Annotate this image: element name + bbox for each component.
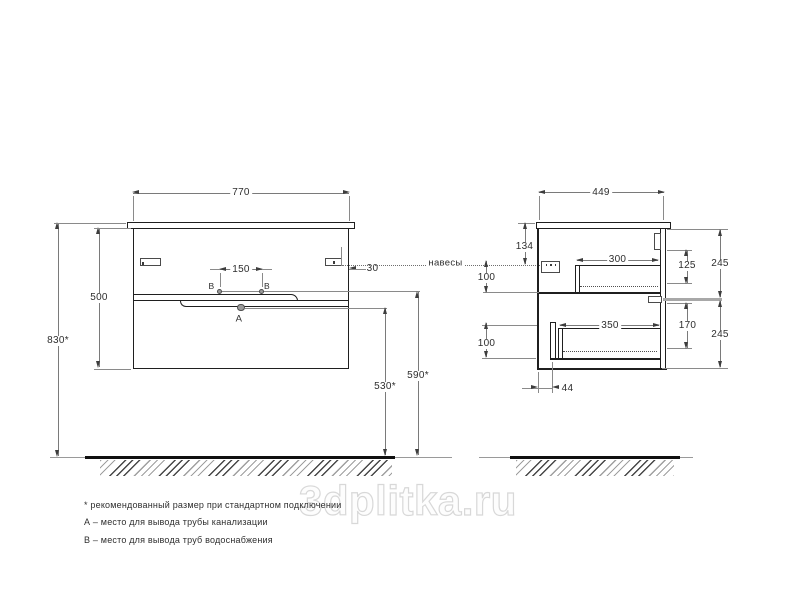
ext-line	[539, 196, 540, 220]
dim-front-width: 770	[230, 188, 252, 198]
floor-line-side	[510, 456, 680, 459]
vanity-technical-drawing: 3dplitka.ru В В А 150	[0, 0, 800, 600]
dim-supply-height: 590*	[405, 371, 431, 381]
ext-line	[662, 368, 728, 369]
side-front-edge	[537, 228, 539, 370]
front-drawer-groove-top	[133, 294, 290, 295]
label-b-right: В	[262, 282, 272, 291]
dim-upper-section: 245	[709, 259, 731, 269]
dim-hanger-gap: 100	[476, 273, 498, 283]
side-upper-mount-rail	[654, 233, 661, 250]
dim-hanger-offset: 30	[365, 264, 381, 274]
ext-line	[482, 325, 537, 326]
dim-upper-inner-height: 125	[676, 261, 698, 271]
hanger-pin	[546, 264, 548, 266]
drain-level-line	[245, 308, 387, 309]
dim-tail	[210, 269, 220, 270]
ext-line	[341, 247, 342, 267]
dim-drain-height: 530*	[372, 382, 398, 392]
side-bottom-edge	[537, 368, 667, 370]
upper-drawer-front	[575, 265, 576, 293]
front-cabinet-body	[133, 228, 349, 369]
upper-drawer-bottom	[539, 292, 661, 293]
ext-line	[483, 292, 539, 293]
dim-lower-drawer-depth: 350	[599, 321, 621, 331]
dim-total-height: 830*	[45, 336, 71, 346]
front-left-hanger-pin	[142, 262, 145, 265]
dim-line-hanger-offset	[349, 269, 366, 270]
front-drawer-gap-line	[133, 300, 349, 302]
lower-drawer-bottom	[550, 358, 661, 359]
floor-hatch-front	[100, 460, 392, 476]
floor-hatch-side	[516, 460, 674, 476]
dim-body-height: 500	[88, 293, 110, 303]
dim-lower-inner-height: 170	[677, 321, 699, 331]
supply-level-line	[221, 291, 420, 292]
lower-drawer-front-wall-inner	[562, 328, 563, 359]
upper-drawer-front-inner	[579, 265, 580, 293]
drain-point	[237, 304, 244, 311]
dim-tail	[262, 269, 272, 270]
hanger-pin	[555, 264, 557, 266]
side-divider-line	[663, 298, 722, 301]
lower-drawer-dotted	[563, 351, 657, 352]
dim-depth: 449	[590, 188, 612, 198]
lower-drawer-front-wall	[558, 328, 559, 359]
dim-front-clearance: 44	[560, 384, 576, 394]
ext-line	[94, 228, 131, 229]
side-lower-mount-rail	[648, 296, 662, 302]
note-a: А – место для вывода трубы канализации	[84, 514, 341, 531]
side-top-edge	[539, 228, 661, 229]
ext-line	[482, 358, 536, 359]
arrowhead	[531, 385, 538, 389]
hanger-pin	[550, 264, 552, 266]
arrowhead	[552, 385, 559, 389]
ext-line	[663, 196, 664, 220]
ext-line	[538, 372, 539, 393]
hangers-callout: навесы	[426, 258, 464, 268]
ext-line	[262, 273, 263, 287]
hanger-leader-left	[342, 265, 426, 266]
label-a: А	[234, 314, 245, 324]
ext-line	[349, 196, 350, 221]
upper-drawer-dotted	[580, 286, 658, 287]
water-supply-point-left	[217, 289, 222, 294]
floor-line-front	[85, 456, 395, 459]
dim-hanger-top-offset: 134	[514, 242, 536, 252]
ext-line	[133, 196, 134, 221]
ext-line	[54, 223, 126, 224]
note-recommended: * рекомендованный размер при стандартном…	[84, 497, 341, 514]
dim-outlet-spacing: 150	[230, 265, 252, 275]
front-right-hanger-pin	[333, 261, 336, 264]
ext-line	[94, 369, 131, 370]
label-b-left: В	[207, 282, 217, 291]
note-b: В – место для вывода труб водоснабжения	[84, 532, 341, 549]
ext-line	[220, 273, 221, 287]
dim-lower-gap: 100	[476, 339, 498, 349]
dim-upper-drawer-depth: 300	[607, 255, 629, 265]
dim-lower-section: 245	[709, 330, 731, 340]
lower-drawer-front-bar	[550, 322, 556, 360]
footnotes: * рекомендованный размер при стандартном…	[84, 497, 341, 549]
hanger-leader-right	[465, 265, 542, 266]
